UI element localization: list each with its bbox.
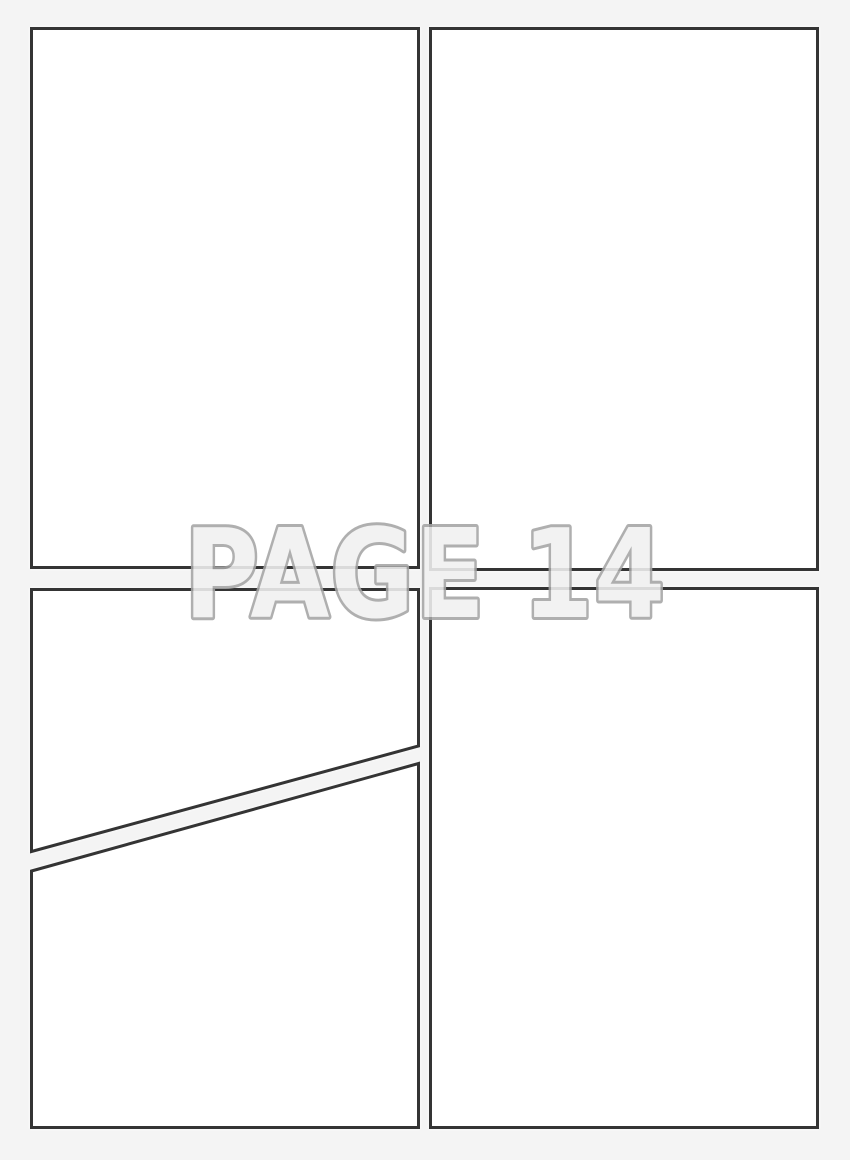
- panel-top-right: [431, 29, 818, 570]
- panel-bottom-right: [431, 589, 818, 1128]
- comic-page-template: PAGE 14: [0, 0, 850, 1160]
- page-number-watermark: PAGE 14: [184, 504, 666, 647]
- comic-page-canvas: PAGE 14: [0, 0, 850, 1160]
- panel-top-left: [32, 29, 419, 568]
